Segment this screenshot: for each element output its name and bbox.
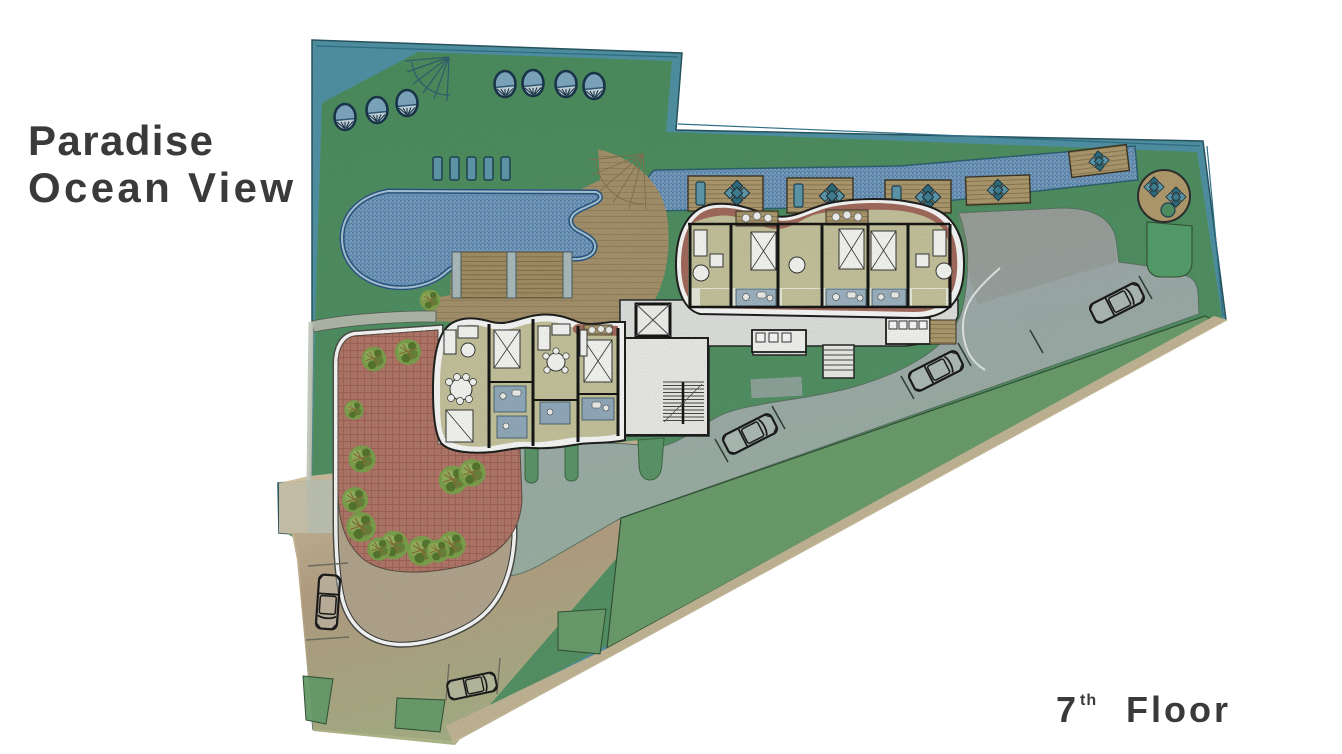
svg-text:Ocean View: Ocean View xyxy=(28,164,295,211)
svg-text:7: 7 xyxy=(1056,689,1076,730)
svg-text:Paradise: Paradise xyxy=(28,117,215,164)
svg-text:th: th xyxy=(1080,692,1097,709)
svg-text:Floor: Floor xyxy=(1126,689,1231,730)
